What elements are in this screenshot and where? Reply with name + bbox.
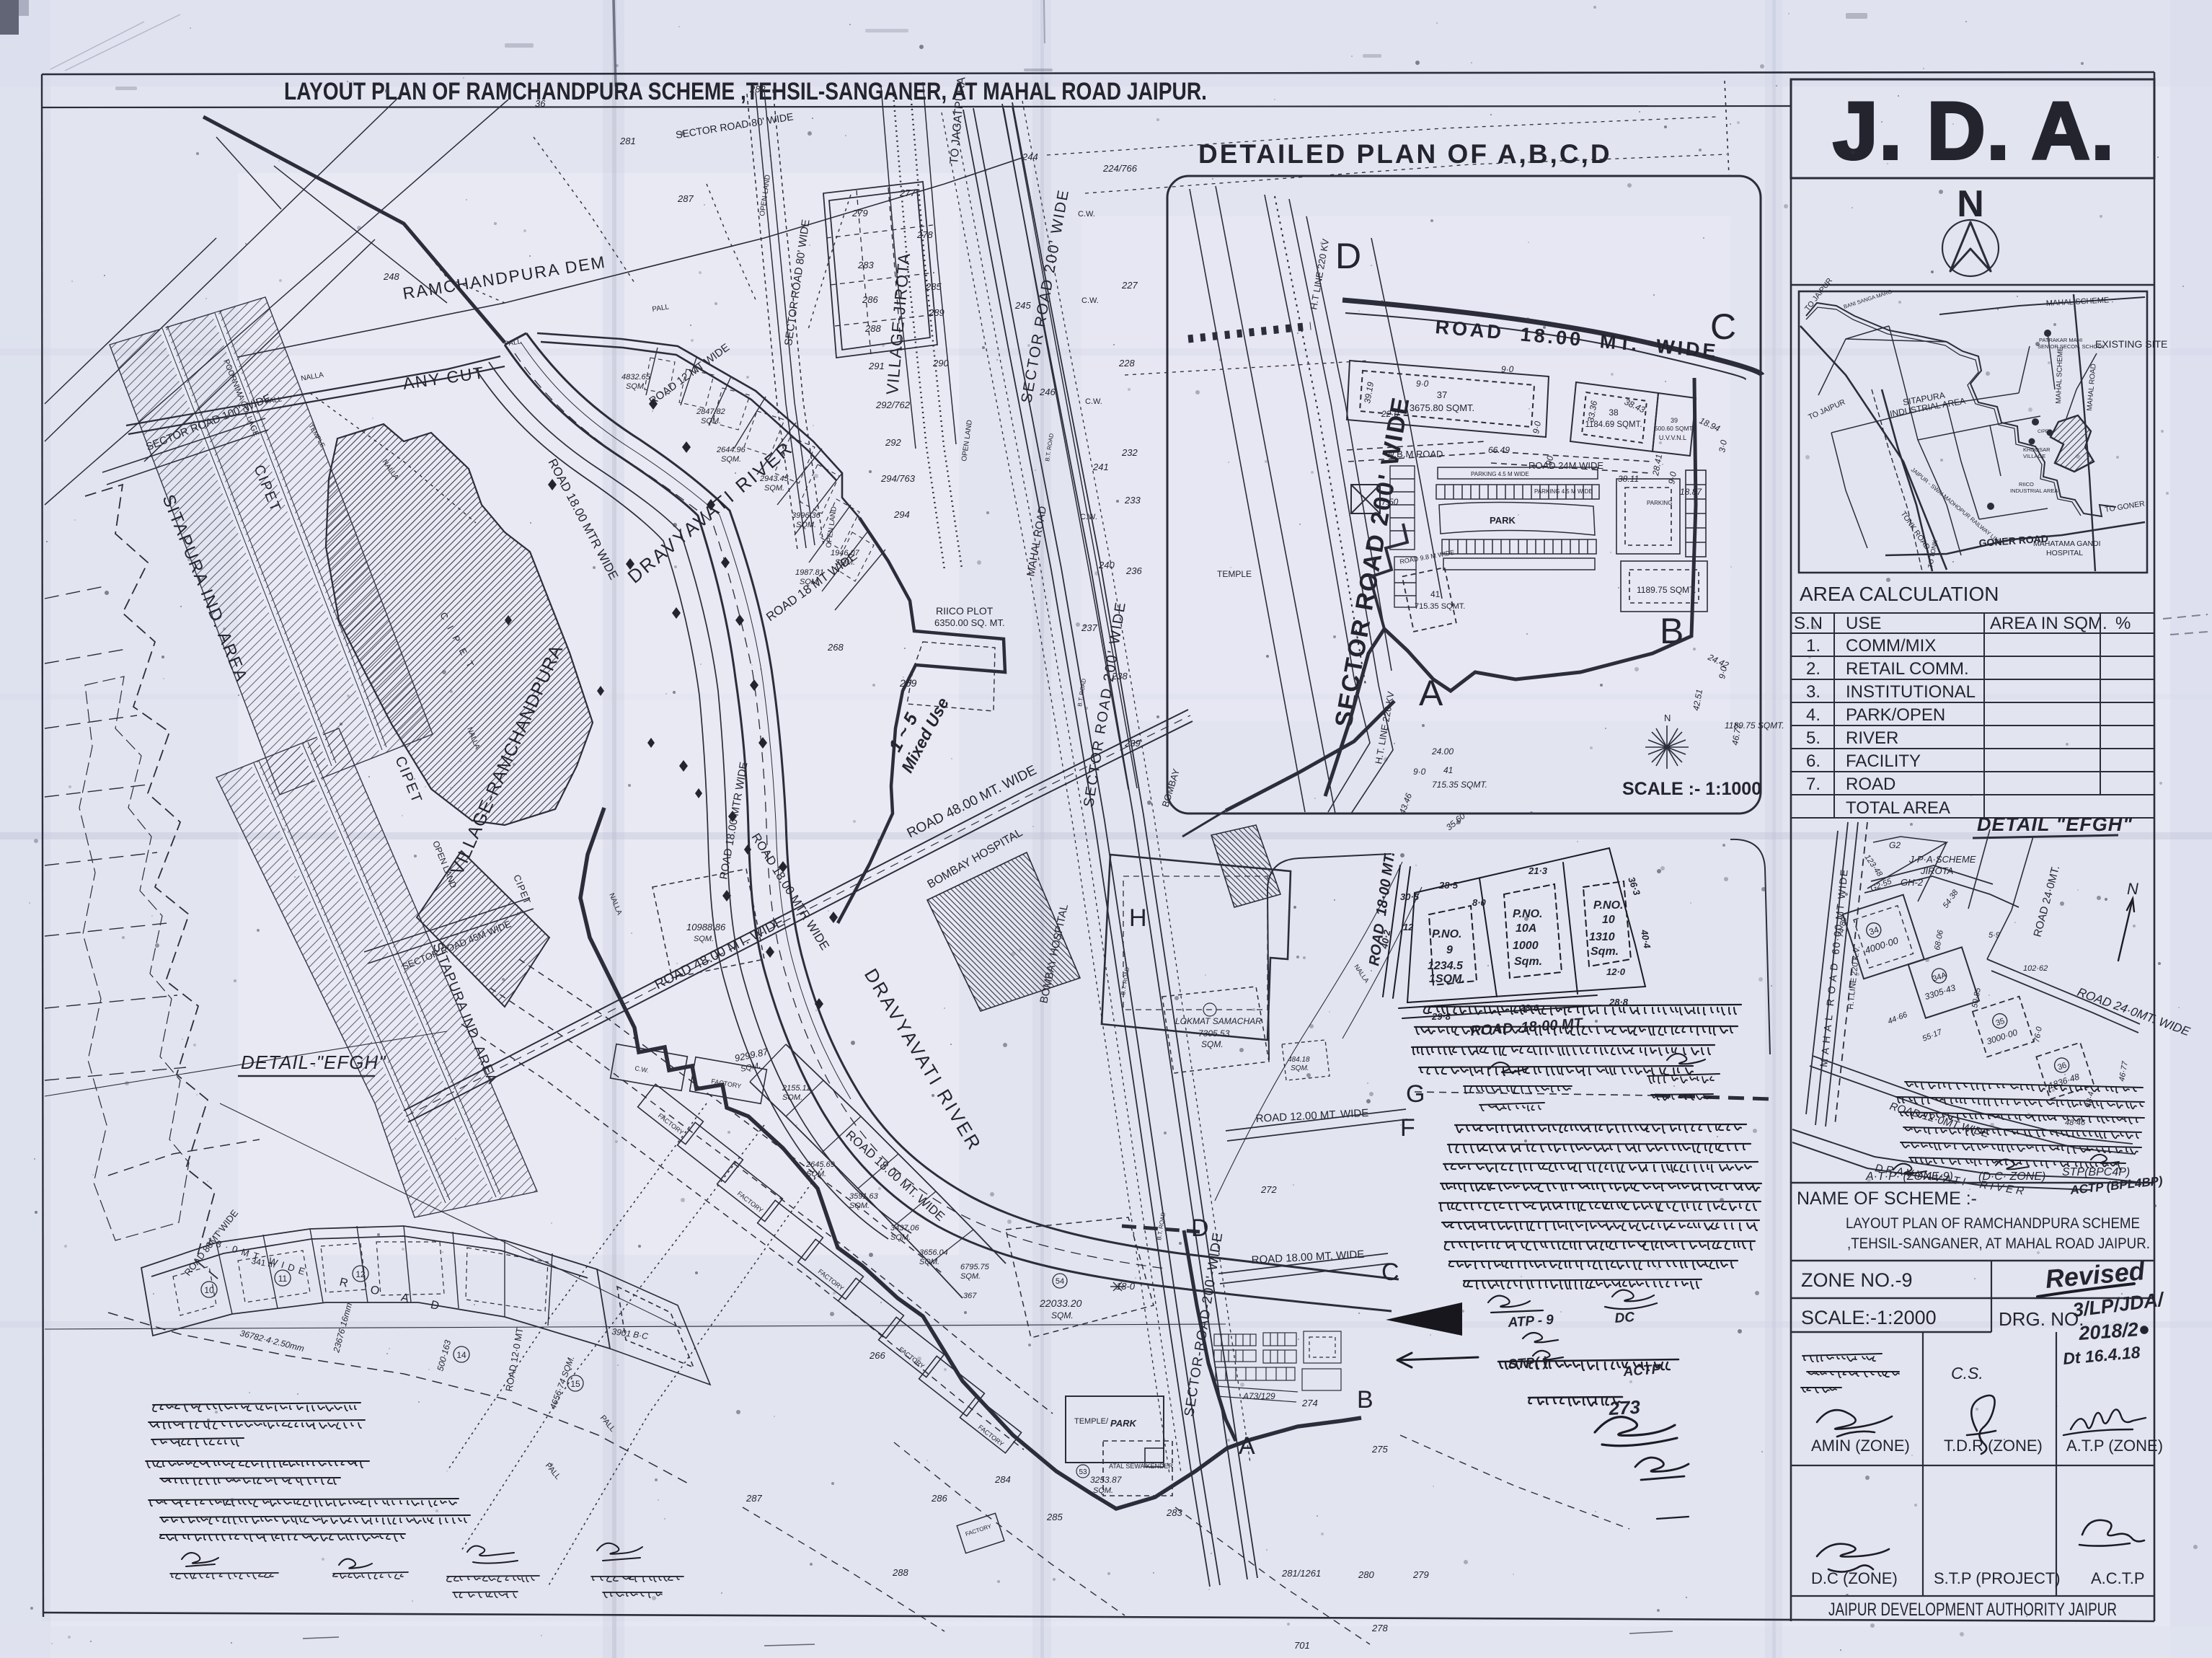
svg-text:SQM.: SQM. [806,1170,826,1178]
svg-text:INSTITUTIONAL: INSTITUTIONAL [1846,682,1976,702]
svg-text:30·5: 30·5 [1400,891,1420,902]
svg-text:227: 227 [1121,280,1138,291]
svg-text:SCALE:-1:2000: SCALE:-1:2000 [1801,1307,1937,1328]
svg-text:9·0: 9·0 [1501,364,1514,374]
svg-text:RIICO PLOT: RIICO PLOT [936,605,994,617]
svg-text:TOTAL AREA: TOTAL AREA [1846,798,1950,818]
svg-text:285: 285 [925,281,942,292]
svg-text:41: 41 [1430,589,1441,599]
svg-text:283: 283 [857,260,874,270]
svg-text:277: 277 [899,188,916,198]
svg-text:,TEHSIL-SANGANER, AT MAHAL ROA: ,TEHSIL-SANGANER, AT MAHAL ROAD JAIPUR. [1847,1235,2150,1252]
svg-text:294: 294 [893,509,910,520]
svg-text:292/762: 292/762 [875,400,911,410]
svg-text:2.: 2. [1806,659,1821,679]
svg-text:SQM.: SQM. [701,417,721,425]
svg-text:SQM.: SQM. [1201,1039,1224,1049]
svg-text:N: N [1957,183,1984,225]
svg-text:10A: 10A [1516,922,1536,935]
svg-text:SQM.: SQM. [796,521,816,529]
svg-text:22033.20: 22033.20 [1039,1297,1082,1309]
svg-text:C.W.: C.W. [1085,397,1102,406]
svg-text:38.11: 38.11 [1618,474,1639,484]
svg-text:N: N [2127,880,2138,898]
svg-text:37: 37 [1437,389,1447,400]
svg-text:PATRAKAR MAHI: PATRAKAR MAHI [2039,337,2082,343]
svg-text:JIROTA: JIROTA [1920,865,1953,876]
svg-text:STP(BPC4P): STP(BPC4P) [2062,1166,2130,1178]
svg-text:102·62: 102·62 [2023,964,2048,973]
svg-text:2644.96: 2644.96 [716,446,746,454]
svg-text:Sqm.: Sqm. [1514,956,1542,968]
svg-text:280: 280 [1358,1569,1374,1580]
svg-text:90: 90 [1544,455,1555,467]
svg-text:SQM.: SQM. [960,1272,981,1281]
svg-text:(D·C· ZONE): (D·C· ZONE) [1978,1170,2045,1183]
svg-text:10: 10 [1602,914,1615,926]
svg-text:1189.75 SQMT.: 1189.75 SQMT. [1637,585,1696,595]
svg-text:8·0: 8·0 [1472,897,1487,908]
svg-text:3253.87: 3253.87 [1090,1475,1123,1485]
svg-text:A73/129: A73/129 [1242,1391,1275,1401]
svg-text:39: 39 [1671,417,1678,424]
svg-text:278: 278 [1371,1623,1388,1633]
svg-text:715.35 SQMT.: 715.35 SQMT. [1432,780,1487,790]
svg-text:283: 283 [1166,1507,1182,1518]
svg-text:STP( ): STP( ) [1508,1354,1548,1372]
svg-text:A.T.P (ZONE): A.T.P (ZONE) [2066,1437,2163,1455]
svg-text:41: 41 [1443,765,1453,775]
svg-text:G2: G2 [1889,840,1901,850]
svg-text:ROAD 24M WIDE: ROAD 24M WIDE [1529,460,1603,471]
svg-text:287: 287 [746,1493,762,1504]
svg-text:279: 279 [851,208,868,219]
svg-text:PARK: PARK [1110,1418,1137,1429]
svg-text:RIICO: RIICO [2019,481,2034,488]
svg-text:290: 290 [932,358,949,369]
svg-text:AREA IN SQM.: AREA IN SQM. [1990,614,2107,633]
svg-text:J. D. A.: J. D. A. [1833,86,2115,176]
svg-text:1.: 1. [1806,636,1821,656]
svg-text:SQM.: SQM. [849,1201,870,1210]
svg-text:287: 287 [677,193,694,204]
svg-text:LOKMAT SAMACHAR: LOKMAT SAMACHAR [1175,1016,1262,1026]
svg-text:3591.63: 3591.63 [849,1192,879,1201]
svg-text:18.87: 18.87 [1680,487,1702,497]
svg-text:ATAL SEWA KENDER: ATAL SEWA KENDER [1109,1463,1174,1470]
svg-text:MAHATAMA GANDI: MAHATAMA GANDI [2033,539,2101,548]
svg-text:S.T.P (PROJECT): S.T.P (PROJECT) [1934,1569,2061,1587]
svg-text:C.S.: C.S. [1951,1364,1983,1383]
svg-text:14: 14 [456,1350,466,1360]
svg-text:PARKING 4.5 M WIDE: PARKING 4.5 M WIDE [1534,488,1593,495]
svg-text:LAYOUT PLAN OF RAMCHANDPURA S: LAYOUT PLAN OF RAMCHANDPURA SCHEME [1846,1215,2140,1232]
svg-text:484.18: 484.18 [1288,1056,1310,1064]
svg-text:RETAIL COMM.: RETAIL COMM. [1846,659,1969,679]
svg-text:279: 279 [1412,1569,1429,1580]
svg-text:4832.65: 4832.65 [621,373,651,382]
svg-text:28·6: 28·6 [1519,1002,1539,1013]
svg-text:GH-2: GH-2 [1901,877,1924,888]
svg-text:246: 246 [1039,387,1056,397]
svg-text:10: 10 [204,1285,214,1295]
svg-text:EXISTING SITE: EXISTING SITE [2095,338,2167,350]
svg-text:USE: USE [1846,614,1881,633]
svg-text:D: D [1191,1214,1209,1242]
svg-text:NAME OF SCHEME :-: NAME OF SCHEME :- [1797,1189,1977,1209]
svg-text:22·0: 22·0 [1381,409,1399,419]
svg-text:VILLAGE: VILLAGE [2023,453,2045,459]
svg-text:SQM.: SQM. [694,935,714,943]
svg-text:241: 241 [1092,462,1109,472]
svg-text:245: 245 [1014,300,1031,311]
svg-text:36: 36 [535,98,546,109]
svg-text:6.: 6. [1806,751,1821,771]
svg-text:TEMPLE/: TEMPLE/ [1074,1417,1109,1426]
svg-text:292: 292 [885,437,901,448]
svg-text:FACILITY: FACILITY [1846,751,1921,771]
svg-text:AMIN (ZONE): AMIN (ZONE) [1811,1437,1910,1455]
svg-text:3437.06: 3437.06 [890,1224,920,1233]
svg-text:%: % [2115,614,2131,633]
svg-text:3.: 3. [1806,682,1821,702]
svg-text:53: 53 [1079,1468,1087,1476]
svg-text:11: 11 [278,1274,288,1284]
svg-text:F: F [1400,1114,1415,1142]
svg-text:A.C.T.P: A.C.T.P [2091,1569,2145,1587]
svg-text:A: A [1239,1432,1255,1460]
svg-text:4.: 4. [1806,705,1821,725]
svg-text:PARKING: PARKING [1647,500,1672,506]
svg-text:SQM.: SQM. [890,1233,911,1242]
svg-text:DETAIL-"EFGH": DETAIL-"EFGH" [241,1051,386,1073]
svg-text:248: 248 [383,271,399,282]
svg-text:7.50: 7.50 [1381,497,1399,507]
svg-text:2943.45: 2943.45 [759,475,789,483]
svg-text:274: 274 [1301,1398,1318,1408]
svg-text:SCALE :- 1:1000: SCALE :- 1:1000 [1622,779,1761,799]
svg-text:JAIPUR DEVELOPMENT AUTHORITY J: JAIPUR DEVELOPMENT AUTHORITY JAIPUR [1828,1600,2117,1620]
svg-text:D: D [1335,236,1361,276]
svg-text:284: 284 [994,1474,1011,1485]
svg-text:C.W.: C.W. [1078,210,1095,219]
svg-text:CIPET: CIPET [2038,429,2051,434]
svg-text:SQM.: SQM. [782,1093,802,1102]
svg-text:DETAIL "EFGH": DETAIL "EFGH" [1977,813,2133,835]
svg-text:SQM.: SQM. [1291,1064,1309,1072]
svg-text:285: 285 [1046,1512,1063,1522]
svg-text:6795.75: 6795.75 [960,1263,990,1271]
svg-text:SQM.: SQM. [1051,1310,1074,1320]
svg-text:6350.00 SQ. MT.: 6350.00 SQ. MT. [934,617,1005,628]
svg-text:9·0: 9·0 [1413,767,1426,777]
svg-text:15: 15 [570,1379,580,1389]
svg-text:1234.5: 1234.5 [1428,960,1464,972]
svg-text:PARK/OPEN: PARK/OPEN [1846,705,1945,725]
svg-text:500.60 SQMT.: 500.60 SQMT. [1655,425,1694,432]
svg-text:TEMPLE: TEMPLE [1217,569,1252,579]
svg-text:C: C [1381,1258,1399,1286]
svg-text:DETAILED PLAN OF A,B,C,D: DETAILED PLAN OF A,B,C,D [1198,139,1612,169]
svg-text:289: 289 [928,307,944,318]
svg-text:236: 236 [1125,565,1142,576]
svg-text:24.00: 24.00 [1431,746,1454,757]
svg-text:66.49: 66.49 [1488,445,1510,455]
svg-text:C.W.: C.W. [1081,296,1099,305]
svg-text:ROAD: ROAD [1846,775,1895,794]
svg-text:21·3: 21·3 [1528,865,1548,876]
svg-text:Sqm.: Sqm. [1591,945,1619,958]
svg-text:U.V.V.N.L: U.V.V.N.L [1659,434,1686,441]
svg-text:281: 281 [619,136,636,146]
svg-text:9·0: 9·0 [1416,379,1429,389]
svg-text:701: 701 [1294,1640,1310,1651]
svg-text:233: 233 [1124,495,1141,506]
svg-text:2155.11: 2155.11 [782,1084,810,1093]
svg-text:266: 266 [869,1350,885,1361]
svg-text:12: 12 [355,1269,366,1279]
svg-text:237: 237 [1081,622,1097,633]
svg-text:5·9: 5·9 [1988,931,2000,940]
svg-text:286: 286 [931,1493,947,1504]
svg-text:W.B.M ROAD: W.B.M ROAD [1386,449,1443,459]
svg-text:10988.86: 10988.86 [686,922,726,932]
svg-text:282: 282 [749,84,766,94]
svg-text:268: 268 [827,642,844,653]
svg-text:RIVER: RIVER [1846,728,1898,748]
svg-text:SQM.: SQM. [626,382,646,391]
svg-text:715.35 SQMT.: 715.35 SQMT. [1415,602,1465,611]
svg-text:T.D.R (ZONE): T.D.R (ZONE) [1944,1437,2043,1455]
svg-text:1SQM.: 1SQM. [1429,973,1465,985]
svg-text:224/766: 224/766 [1102,163,1138,174]
svg-text:SQM.: SQM. [1093,1486,1113,1495]
svg-text:12: 12 [1403,922,1414,932]
svg-text:275: 275 [1371,1444,1388,1455]
svg-text:232: 232 [1121,447,1138,458]
svg-text:H: H [1129,904,1147,932]
svg-text:273: 273 [1608,1396,1641,1419]
svg-text:12·0: 12·0 [1606,966,1626,977]
svg-text:2847.82: 2847.82 [696,407,725,416]
svg-text:3675.80 SQMT.: 3675.80 SQMT. [1410,402,1474,413]
svg-text:P.NO.: P.NO. [1432,928,1462,940]
svg-text:INDUSTRIAL AREA: INDUSTRIAL AREA [2010,488,2058,494]
svg-text:54: 54 [1056,1277,1064,1286]
svg-text:1310: 1310 [1589,931,1615,943]
svg-text:3656.04: 3656.04 [919,1248,948,1257]
svg-text:SENIOR SECON. SCHOOL: SENIOR SECON. SCHOOL [2038,343,2105,350]
svg-text:D.C (ZONE): D.C (ZONE) [1811,1569,1898,1587]
svg-text:38: 38 [1609,407,1619,418]
svg-text:P.NO.: P.NO. [1593,899,1624,912]
svg-text:SQM.: SQM. [764,484,784,493]
svg-text:3996.36: 3996.36 [792,511,821,520]
svg-text:G: G [1406,1080,1425,1108]
svg-text:228: 228 [1118,358,1135,369]
svg-text:9: 9 [1446,944,1453,956]
svg-text:288: 288 [892,1567,908,1578]
svg-text:281/1261: 281/1261 [1281,1568,1321,1579]
svg-text:PARKING 4.5 M WIDE: PARKING 4.5 M WIDE [1471,471,1529,477]
svg-text:PARK: PARK [1490,515,1516,526]
svg-text:DRG. NO.: DRG. NO. [1999,1308,2084,1330]
svg-text:288: 288 [864,323,881,334]
svg-text:2645.69: 2645.69 [805,1160,835,1169]
svg-text:269: 269 [899,677,917,689]
svg-text:LAYOUT PLAN OF RAMCHANDPURA S: LAYOUT PLAN OF RAMCHANDPURA SCHEME ,TEHS… [284,78,1207,105]
svg-text:278: 278 [916,229,933,240]
svg-text:N: N [1664,713,1671,723]
svg-text:S.N: S.N [1794,614,1823,633]
svg-text:KHOOSAR: KHOOSAR [2023,446,2050,453]
svg-text:COMM/MIX: COMM/MIX [1846,636,1936,656]
svg-text:244: 244 [1022,151,1038,162]
svg-text:286: 286 [862,294,878,305]
svg-text:HOSPITAL: HOSPITAL [2046,549,2083,557]
svg-text:294/763: 294/763 [880,473,916,484]
svg-text:5.: 5. [1806,728,1821,748]
svg-text:ZONE NO.-9: ZONE NO.-9 [1801,1269,1913,1291]
svg-text:SQM.: SQM. [721,455,741,464]
svg-text:AREA CALCULATION: AREA CALCULATION [1800,583,1999,605]
svg-text:DC: DC [1614,1310,1635,1326]
svg-text:B: B [1357,1386,1373,1414]
svg-text:28·5: 28·5 [1438,880,1459,891]
svg-text:272: 272 [1260,1184,1277,1195]
svg-text:A·T·P· (ZONE-9): A·T·P· (ZONE-9) [1865,1170,1953,1183]
svg-text:7.: 7. [1806,775,1821,794]
svg-text:291: 291 [868,361,885,371]
svg-text:1000: 1000 [1513,940,1539,952]
svg-text:7305.53: 7305.53 [1198,1028,1230,1039]
svg-text:SQM.: SQM. [919,1258,939,1266]
svg-text:367: 367 [963,1292,977,1300]
